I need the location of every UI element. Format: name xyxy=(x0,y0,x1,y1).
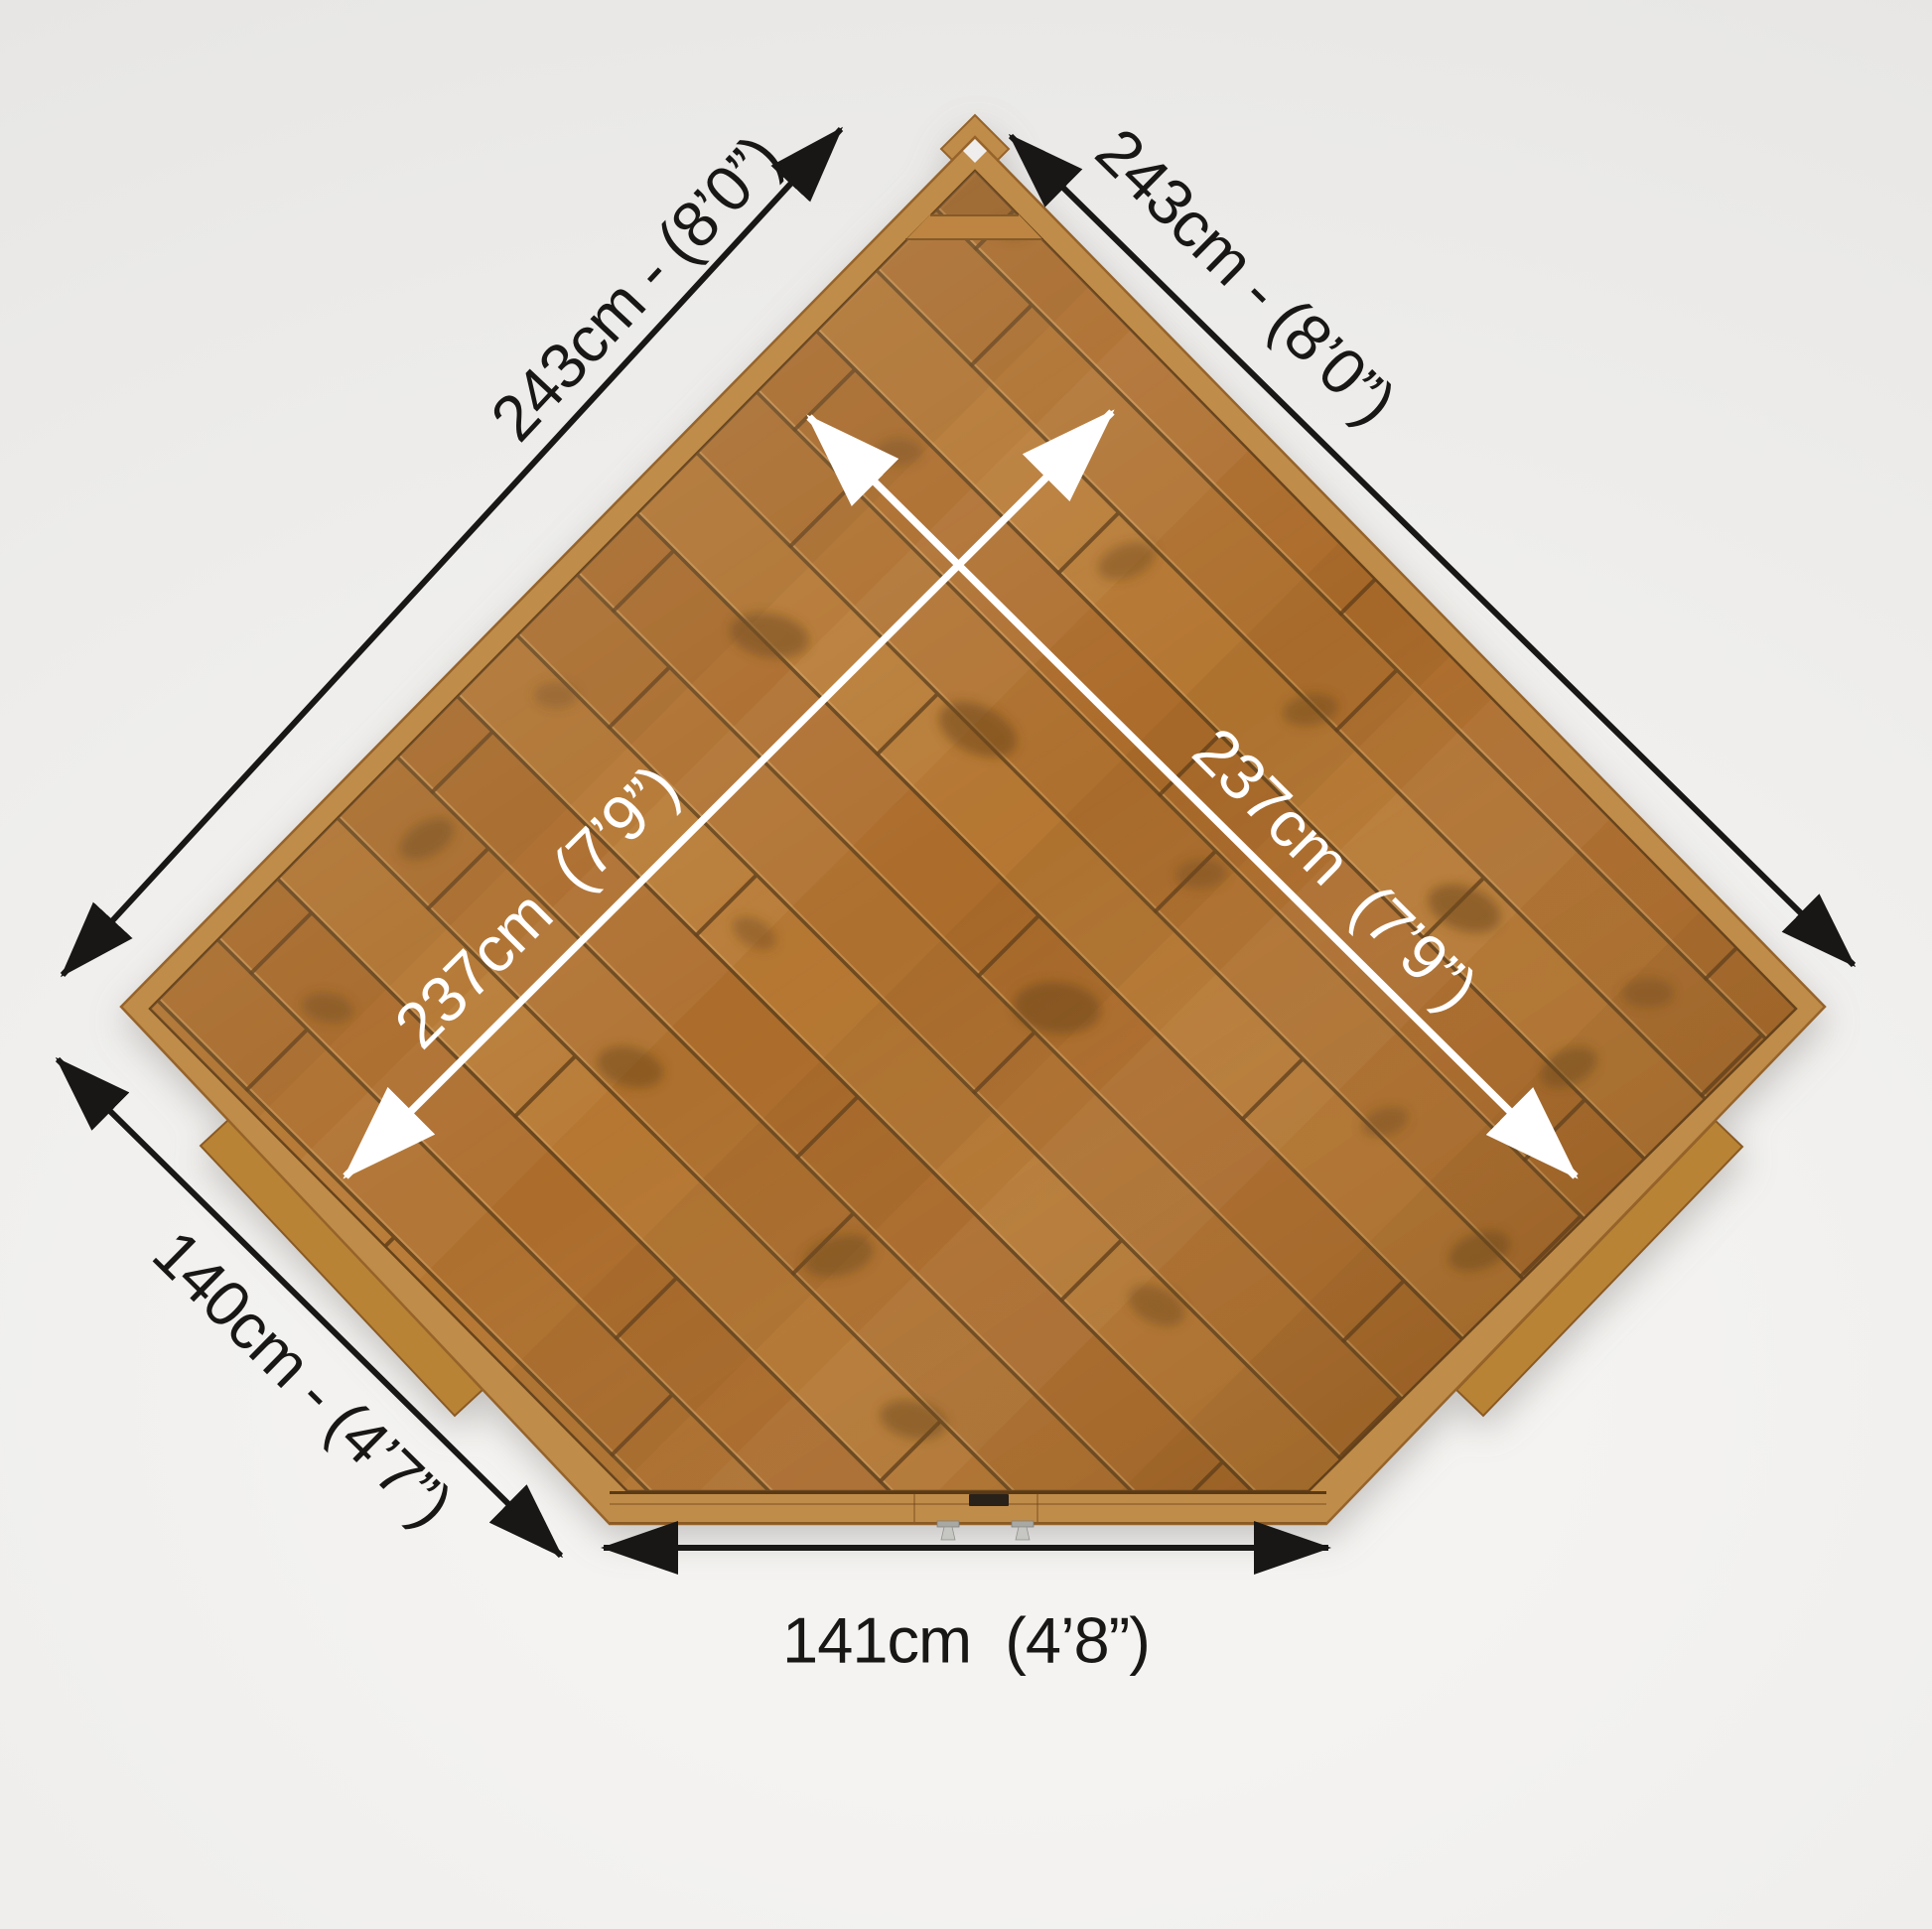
door-hinge xyxy=(937,1521,959,1540)
dimension-label-front-edge: 141cm (4’8”) xyxy=(782,1608,1150,1673)
door-lock-plate xyxy=(969,1494,1009,1506)
front-sill xyxy=(610,1491,1326,1540)
door-hinge xyxy=(1012,1521,1034,1540)
dimension-diagram: 243cm - (8’0”) 243cm - (8’0”) 237cm (7’9… xyxy=(0,0,1932,1929)
